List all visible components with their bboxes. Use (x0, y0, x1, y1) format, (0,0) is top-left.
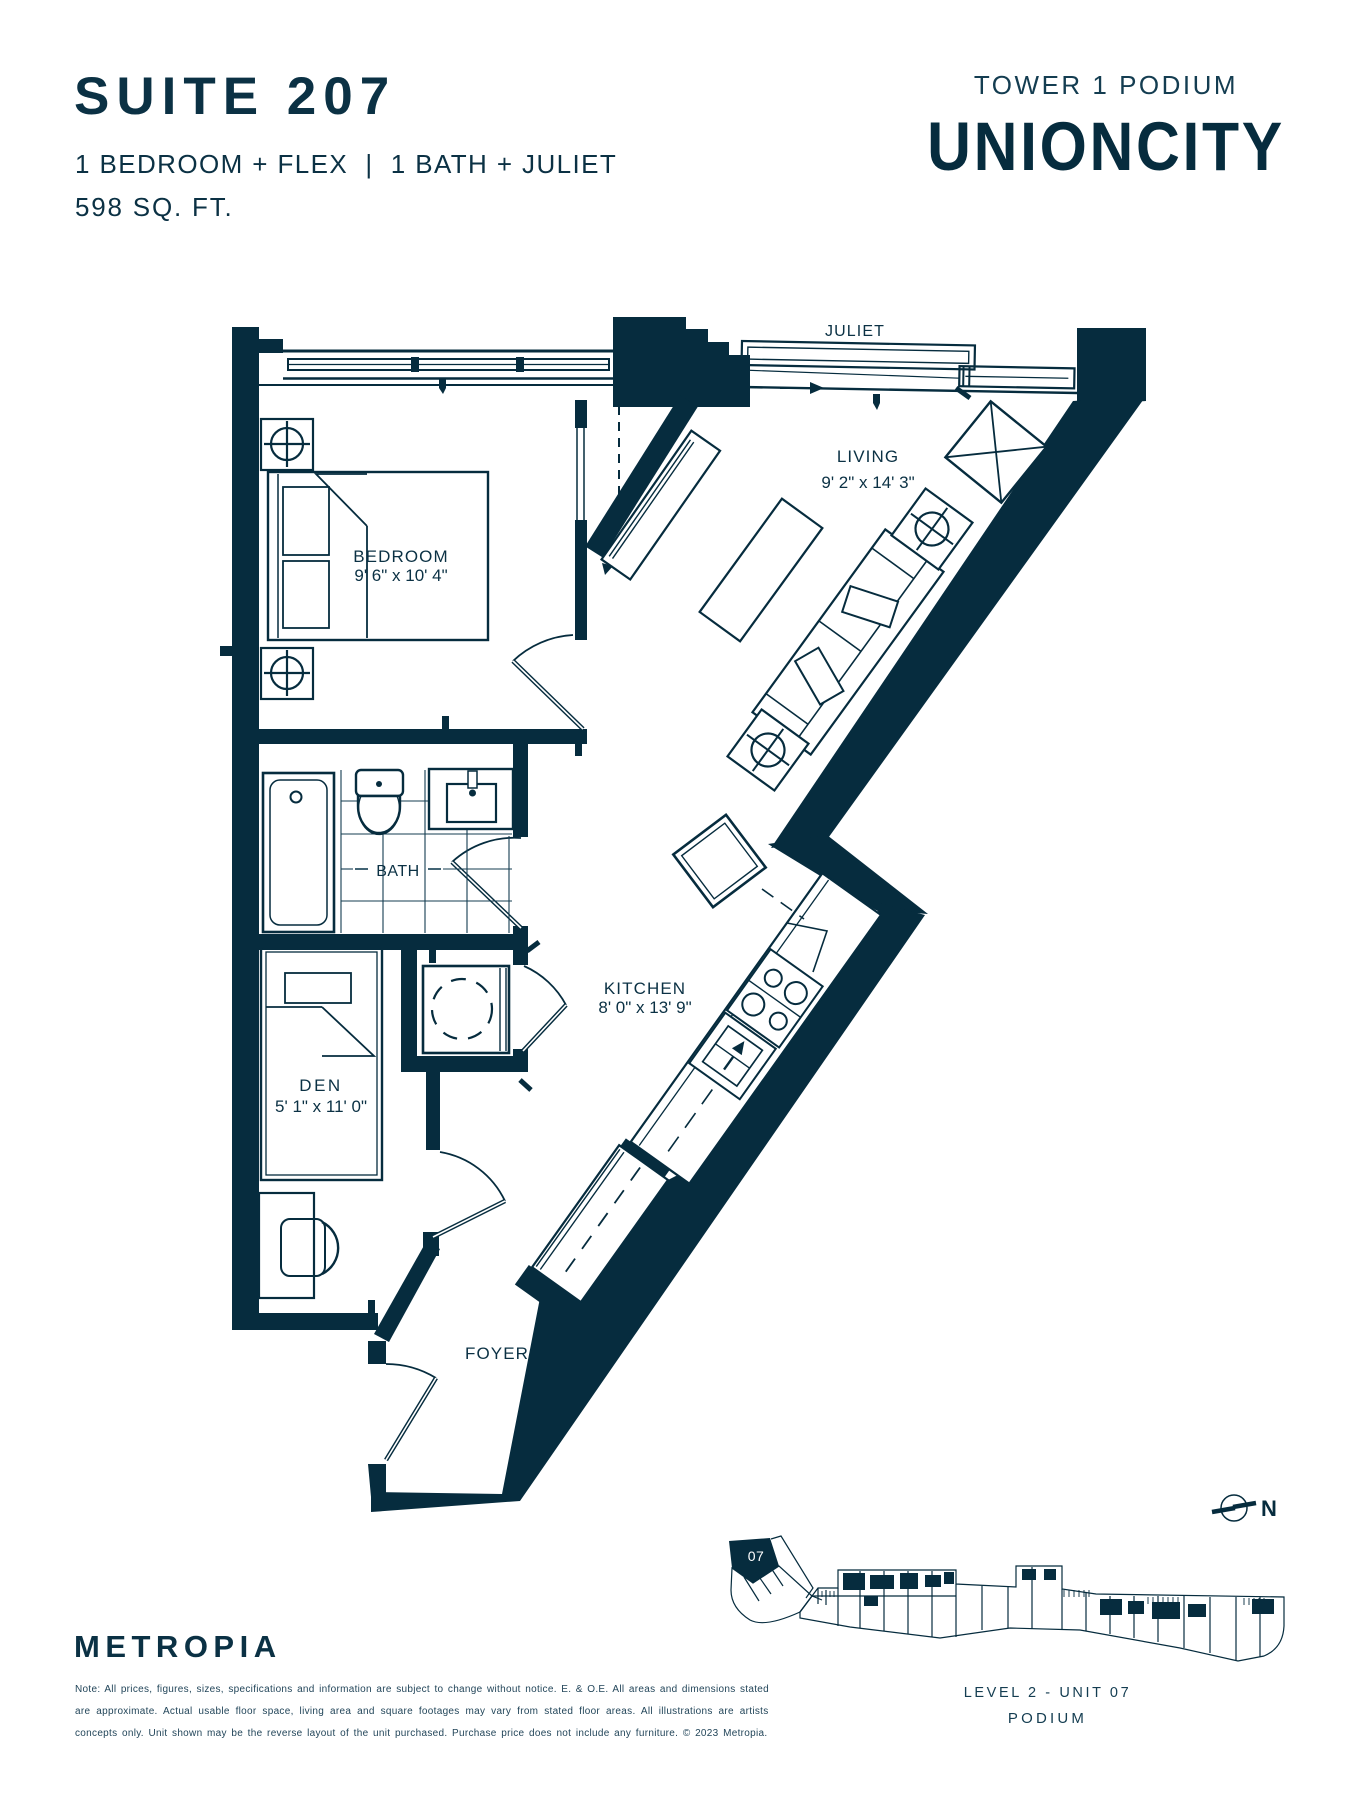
svg-text:DEN: DEN (299, 1076, 342, 1095)
svg-text:8' 0" x 13' 9": 8' 0" x 13' 9" (598, 998, 691, 1017)
svg-text:07: 07 (748, 1548, 765, 1564)
svg-text:N: N (1261, 1496, 1277, 1521)
svg-text:FOYER: FOYER (465, 1344, 529, 1363)
svg-text:9' 2" x 14' 3": 9' 2" x 14' 3" (821, 473, 914, 492)
svg-text:LIVING: LIVING (837, 447, 899, 466)
svg-text:KITCHEN: KITCHEN (604, 979, 686, 998)
svg-text:BATH: BATH (376, 863, 419, 880)
svg-text:JULIET: JULIET (825, 323, 885, 340)
svg-text:5' 1" x 11' 0": 5' 1" x 11' 0" (275, 1097, 367, 1116)
svg-text:9' 6" x 10' 4": 9' 6" x 10' 4" (354, 566, 447, 585)
svg-text:BEDROOM: BEDROOM (353, 547, 449, 566)
